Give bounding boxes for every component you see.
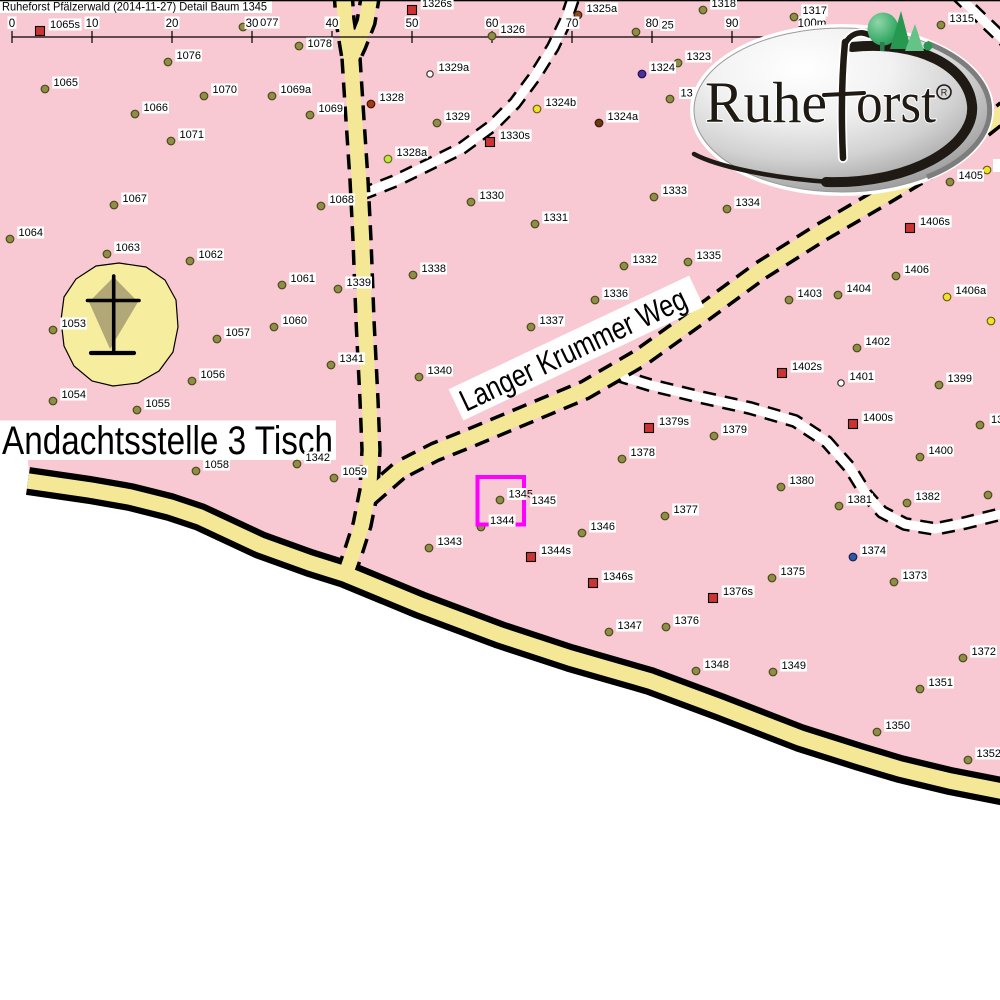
svg-text:1339: 1339 — [347, 277, 371, 289]
svg-text:1340: 1340 — [428, 365, 452, 377]
svg-text:80: 80 — [646, 18, 659, 30]
svg-text:1341: 1341 — [340, 353, 364, 365]
svg-text:1406a: 1406a — [956, 285, 987, 297]
svg-text:Andachtsstelle 3 Tisch: Andachtsstelle 3 Tisch — [2, 419, 333, 463]
svg-text:1373: 1373 — [903, 570, 927, 582]
svg-text:1324a: 1324a — [608, 111, 639, 123]
svg-text:1067: 1067 — [123, 193, 147, 205]
svg-text:1348: 1348 — [705, 659, 729, 671]
svg-text:1338: 1338 — [422, 263, 446, 275]
svg-text:1378: 1378 — [631, 447, 655, 459]
svg-text:1400s: 1400s — [863, 412, 893, 424]
svg-text:1381: 1381 — [848, 494, 872, 506]
svg-text:1344s: 1344s — [541, 545, 571, 557]
svg-text:1372: 1372 — [972, 646, 996, 658]
svg-text:1065: 1065 — [54, 77, 78, 89]
svg-text:1376s: 1376s — [723, 586, 753, 598]
svg-text:1333: 1333 — [663, 185, 687, 197]
svg-text:1343: 1343 — [438, 536, 462, 548]
svg-text:1318: 1318 — [712, 0, 736, 10]
svg-text:1335: 1335 — [697, 250, 721, 262]
svg-text:1400: 1400 — [929, 445, 953, 457]
svg-text:1351: 1351 — [929, 677, 953, 689]
svg-text:0: 0 — [9, 18, 15, 30]
svg-text:1406: 1406 — [905, 264, 929, 276]
svg-text:1349: 1349 — [782, 660, 806, 672]
svg-text:1334: 1334 — [736, 197, 760, 209]
svg-text:1345: 1345 — [532, 495, 556, 507]
svg-text:70: 70 — [566, 18, 579, 30]
svg-text:1326s: 1326s — [422, 0, 452, 10]
svg-text:1380: 1380 — [790, 475, 814, 487]
svg-text:1379: 1379 — [723, 424, 747, 436]
svg-text:1060: 1060 — [283, 315, 307, 327]
svg-text:25: 25 — [662, 19, 674, 31]
svg-text:1346s: 1346s — [603, 571, 633, 583]
svg-text:Ruhe: Ruhe — [705, 70, 827, 135]
svg-text:1330: 1330 — [480, 190, 504, 202]
svg-text:1315: 1315 — [950, 13, 974, 25]
svg-text:1401: 1401 — [850, 371, 874, 383]
svg-text:1346: 1346 — [591, 521, 615, 533]
svg-text:1399: 1399 — [948, 373, 972, 385]
svg-text:13: 13 — [991, 414, 1000, 426]
svg-text:1330s: 1330s — [500, 130, 530, 142]
svg-text:1064: 1064 — [19, 227, 43, 239]
svg-text:1405: 1405 — [959, 170, 983, 182]
svg-text:30: 30 — [246, 18, 259, 30]
svg-text:1345: 1345 — [509, 488, 533, 500]
svg-text:1054: 1054 — [62, 389, 86, 401]
svg-text:1070: 1070 — [213, 84, 237, 96]
svg-text:1068: 1068 — [330, 194, 354, 206]
svg-text:60: 60 — [486, 18, 499, 30]
svg-text:40: 40 — [326, 18, 339, 30]
svg-text:1059: 1059 — [343, 466, 367, 478]
svg-text:1379s: 1379s — [659, 416, 689, 428]
svg-text:1331: 1331 — [544, 212, 568, 224]
svg-text:1329a: 1329a — [439, 62, 470, 74]
svg-text:1325a: 1325a — [587, 3, 618, 15]
svg-text:1055: 1055 — [146, 398, 170, 410]
svg-text:1324b: 1324b — [546, 97, 577, 109]
svg-text:1053: 1053 — [62, 318, 86, 330]
svg-text:1069a: 1069a — [281, 84, 312, 96]
svg-text:1403: 1403 — [798, 288, 822, 300]
svg-text:1377: 1377 — [674, 504, 698, 516]
svg-text:1069: 1069 — [319, 103, 343, 115]
svg-text:1061: 1061 — [291, 273, 315, 285]
svg-text:1057: 1057 — [226, 327, 250, 339]
svg-text:1376: 1376 — [675, 615, 699, 627]
svg-text:1347: 1347 — [618, 620, 642, 632]
svg-text:1404: 1404 — [847, 283, 871, 295]
svg-text:orst: orst — [856, 70, 936, 135]
svg-text:1352: 1352 — [977, 748, 1000, 760]
svg-text:1071: 1071 — [180, 129, 204, 141]
svg-text:1076: 1076 — [177, 50, 201, 62]
svg-text:13: 13 — [681, 87, 693, 99]
svg-text:1056: 1056 — [201, 369, 225, 381]
svg-text:1328a: 1328a — [397, 147, 428, 159]
svg-text:1406s: 1406s — [920, 216, 950, 228]
svg-text:90: 90 — [726, 18, 739, 30]
svg-text:1332: 1332 — [633, 254, 657, 266]
svg-text:1326: 1326 — [501, 24, 525, 36]
svg-text:1329: 1329 — [446, 111, 470, 123]
svg-text:1323: 1323 — [687, 51, 711, 63]
svg-text:1058: 1058 — [205, 459, 229, 471]
svg-text:1375: 1375 — [781, 566, 805, 578]
svg-text:50: 50 — [406, 18, 419, 30]
svg-text:1328: 1328 — [380, 92, 404, 104]
svg-text:1402: 1402 — [866, 336, 890, 348]
svg-text:1066: 1066 — [144, 102, 168, 114]
svg-text:1078: 1078 — [308, 38, 332, 50]
svg-text:1063: 1063 — [116, 242, 140, 254]
svg-text:1324: 1324 — [651, 62, 675, 74]
svg-text:1336: 1336 — [604, 288, 628, 300]
svg-text:1374: 1374 — [862, 545, 886, 557]
svg-text:1342: 1342 — [306, 452, 330, 464]
svg-text:1350: 1350 — [886, 720, 910, 732]
svg-text:R: R — [941, 88, 948, 98]
svg-text:1402s: 1402s — [792, 361, 822, 373]
svg-text:1382: 1382 — [916, 491, 940, 503]
svg-text:1065s: 1065s — [50, 19, 80, 31]
svg-text:Ruheforst Pfälzerwald (2014-11: Ruheforst Pfälzerwald (2014-11-27) Detai… — [2, 0, 267, 14]
svg-text:1344: 1344 — [490, 515, 514, 527]
svg-text:20: 20 — [166, 18, 179, 30]
svg-text:1317: 1317 — [803, 5, 827, 17]
svg-text:1062: 1062 — [199, 249, 223, 261]
svg-text:1337: 1337 — [540, 315, 564, 327]
svg-text:10: 10 — [86, 18, 99, 30]
